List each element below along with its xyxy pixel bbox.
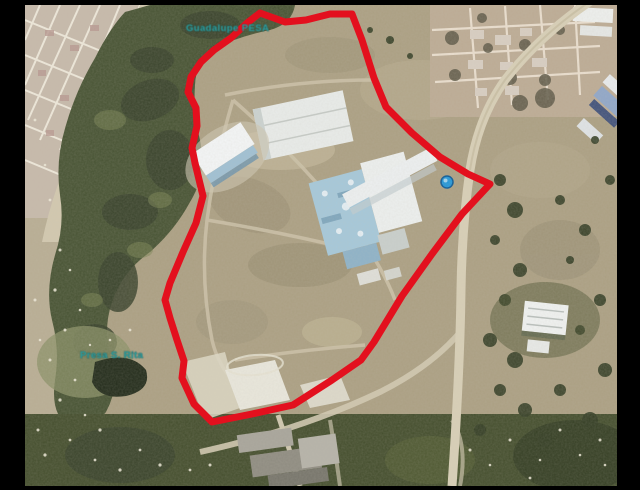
map-label-top: Guadalupe PESA	[186, 23, 269, 34]
map-label-bottom: Presa S. Rita	[80, 350, 144, 361]
screenshot-root: Guadalupe PESA Presa S. Rita	[0, 0, 640, 490]
letterbox-bottom	[0, 486, 640, 490]
letterbox-top	[0, 0, 640, 5]
photo-area: Guadalupe PESA Presa S. Rita	[25, 0, 640, 490]
letterbox-left	[0, 0, 25, 490]
aerial-map[interactable]: Guadalupe PESA Presa S. Rita	[0, 0, 640, 490]
letterbox-right	[617, 0, 640, 490]
photo-grain	[25, 5, 617, 486]
